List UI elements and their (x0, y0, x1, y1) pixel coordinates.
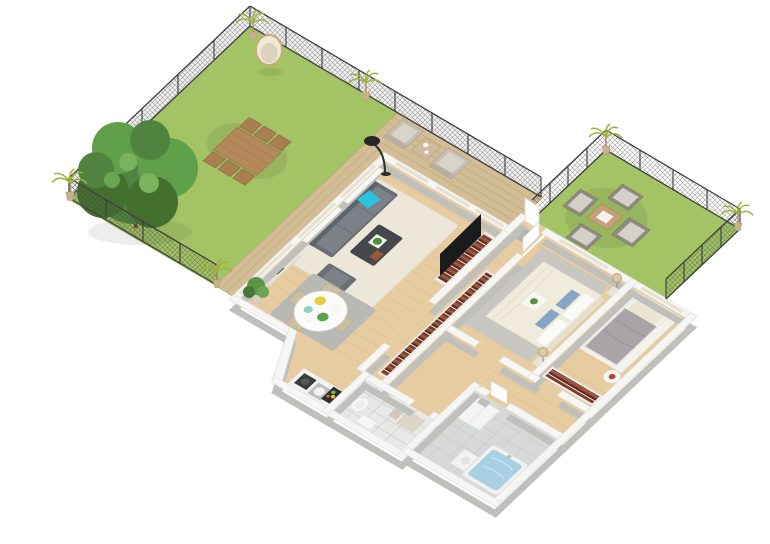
floor-plan-3d-render: 3D isometric rendering of an apartment f… (0, 0, 770, 544)
floor-plan-canvas: 3D isometric rendering of an apartment f… (0, 0, 770, 544)
